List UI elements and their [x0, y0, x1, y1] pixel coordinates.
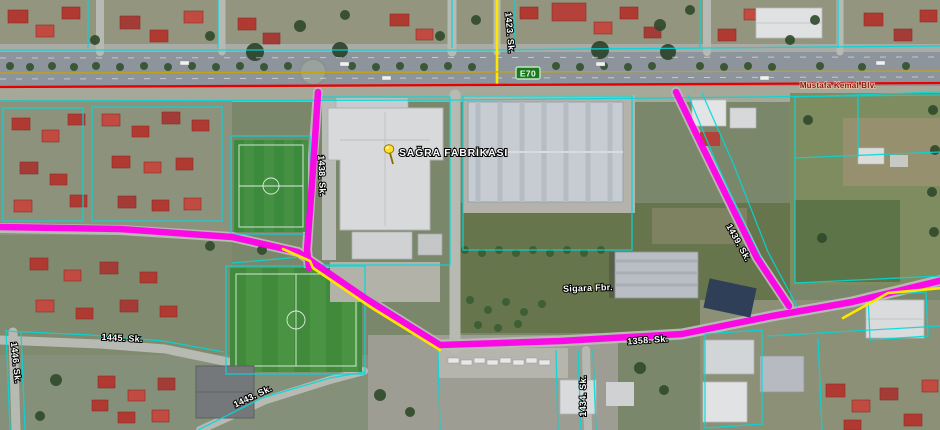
- highway-shield-label: E70: [520, 69, 536, 79]
- place-label-sagra-fabrikasi: SAĞRA FABRİKASI: [399, 146, 508, 159]
- road-label-mustafa-kemal: Mustafa Kemal Blv.: [800, 81, 876, 90]
- satellite-map-canvas[interactable]: E70 Mustafa Kemal Blv. SAĞRA FABRİKASI S…: [0, 0, 940, 430]
- highway-shield-e70[interactable]: E70: [516, 67, 540, 79]
- sagra-factory-buildings: [322, 98, 443, 302]
- road-label-1438-sk: 1438. Sk.: [316, 155, 327, 197]
- place-label-sigara-fbr: Sigara Fbr.: [563, 282, 613, 294]
- road-label-1434-sk: 1434. Sk.: [578, 375, 588, 416]
- soccer-field-upper: [234, 140, 308, 232]
